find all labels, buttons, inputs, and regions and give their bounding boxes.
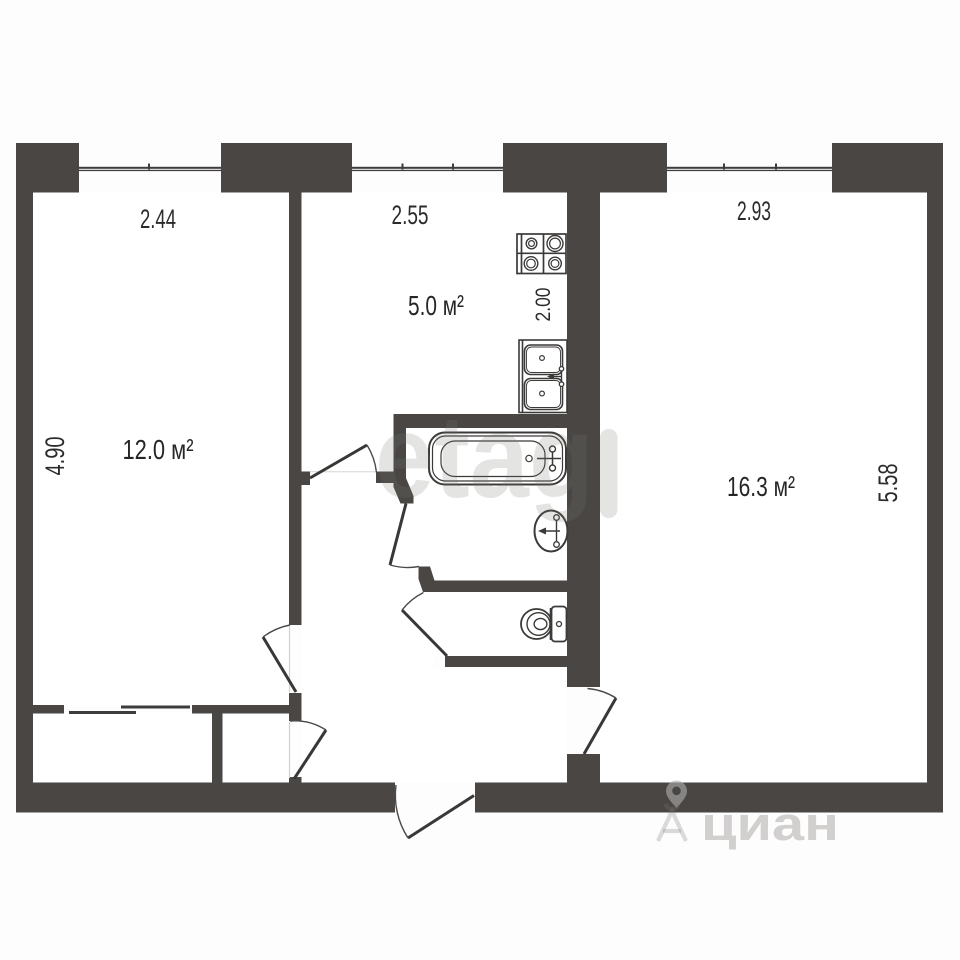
svg-text:etag: etag	[375, 391, 594, 523]
svg-text:2.44: 2.44	[140, 204, 176, 234]
svg-text:5.58: 5.58	[873, 464, 903, 503]
svg-text:2.00: 2.00	[532, 288, 555, 322]
svg-text:циан: циан	[701, 797, 839, 850]
svg-text:16.3 м²: 16.3 м²	[727, 471, 795, 502]
svg-text:4.90: 4.90	[40, 437, 70, 476]
svg-text:5.0 м²: 5.0 м²	[408, 290, 464, 321]
svg-text:2.55: 2.55	[392, 200, 429, 230]
svg-text:2.93: 2.93	[737, 196, 771, 226]
svg-text:12.0 м²: 12.0 м²	[123, 434, 194, 465]
